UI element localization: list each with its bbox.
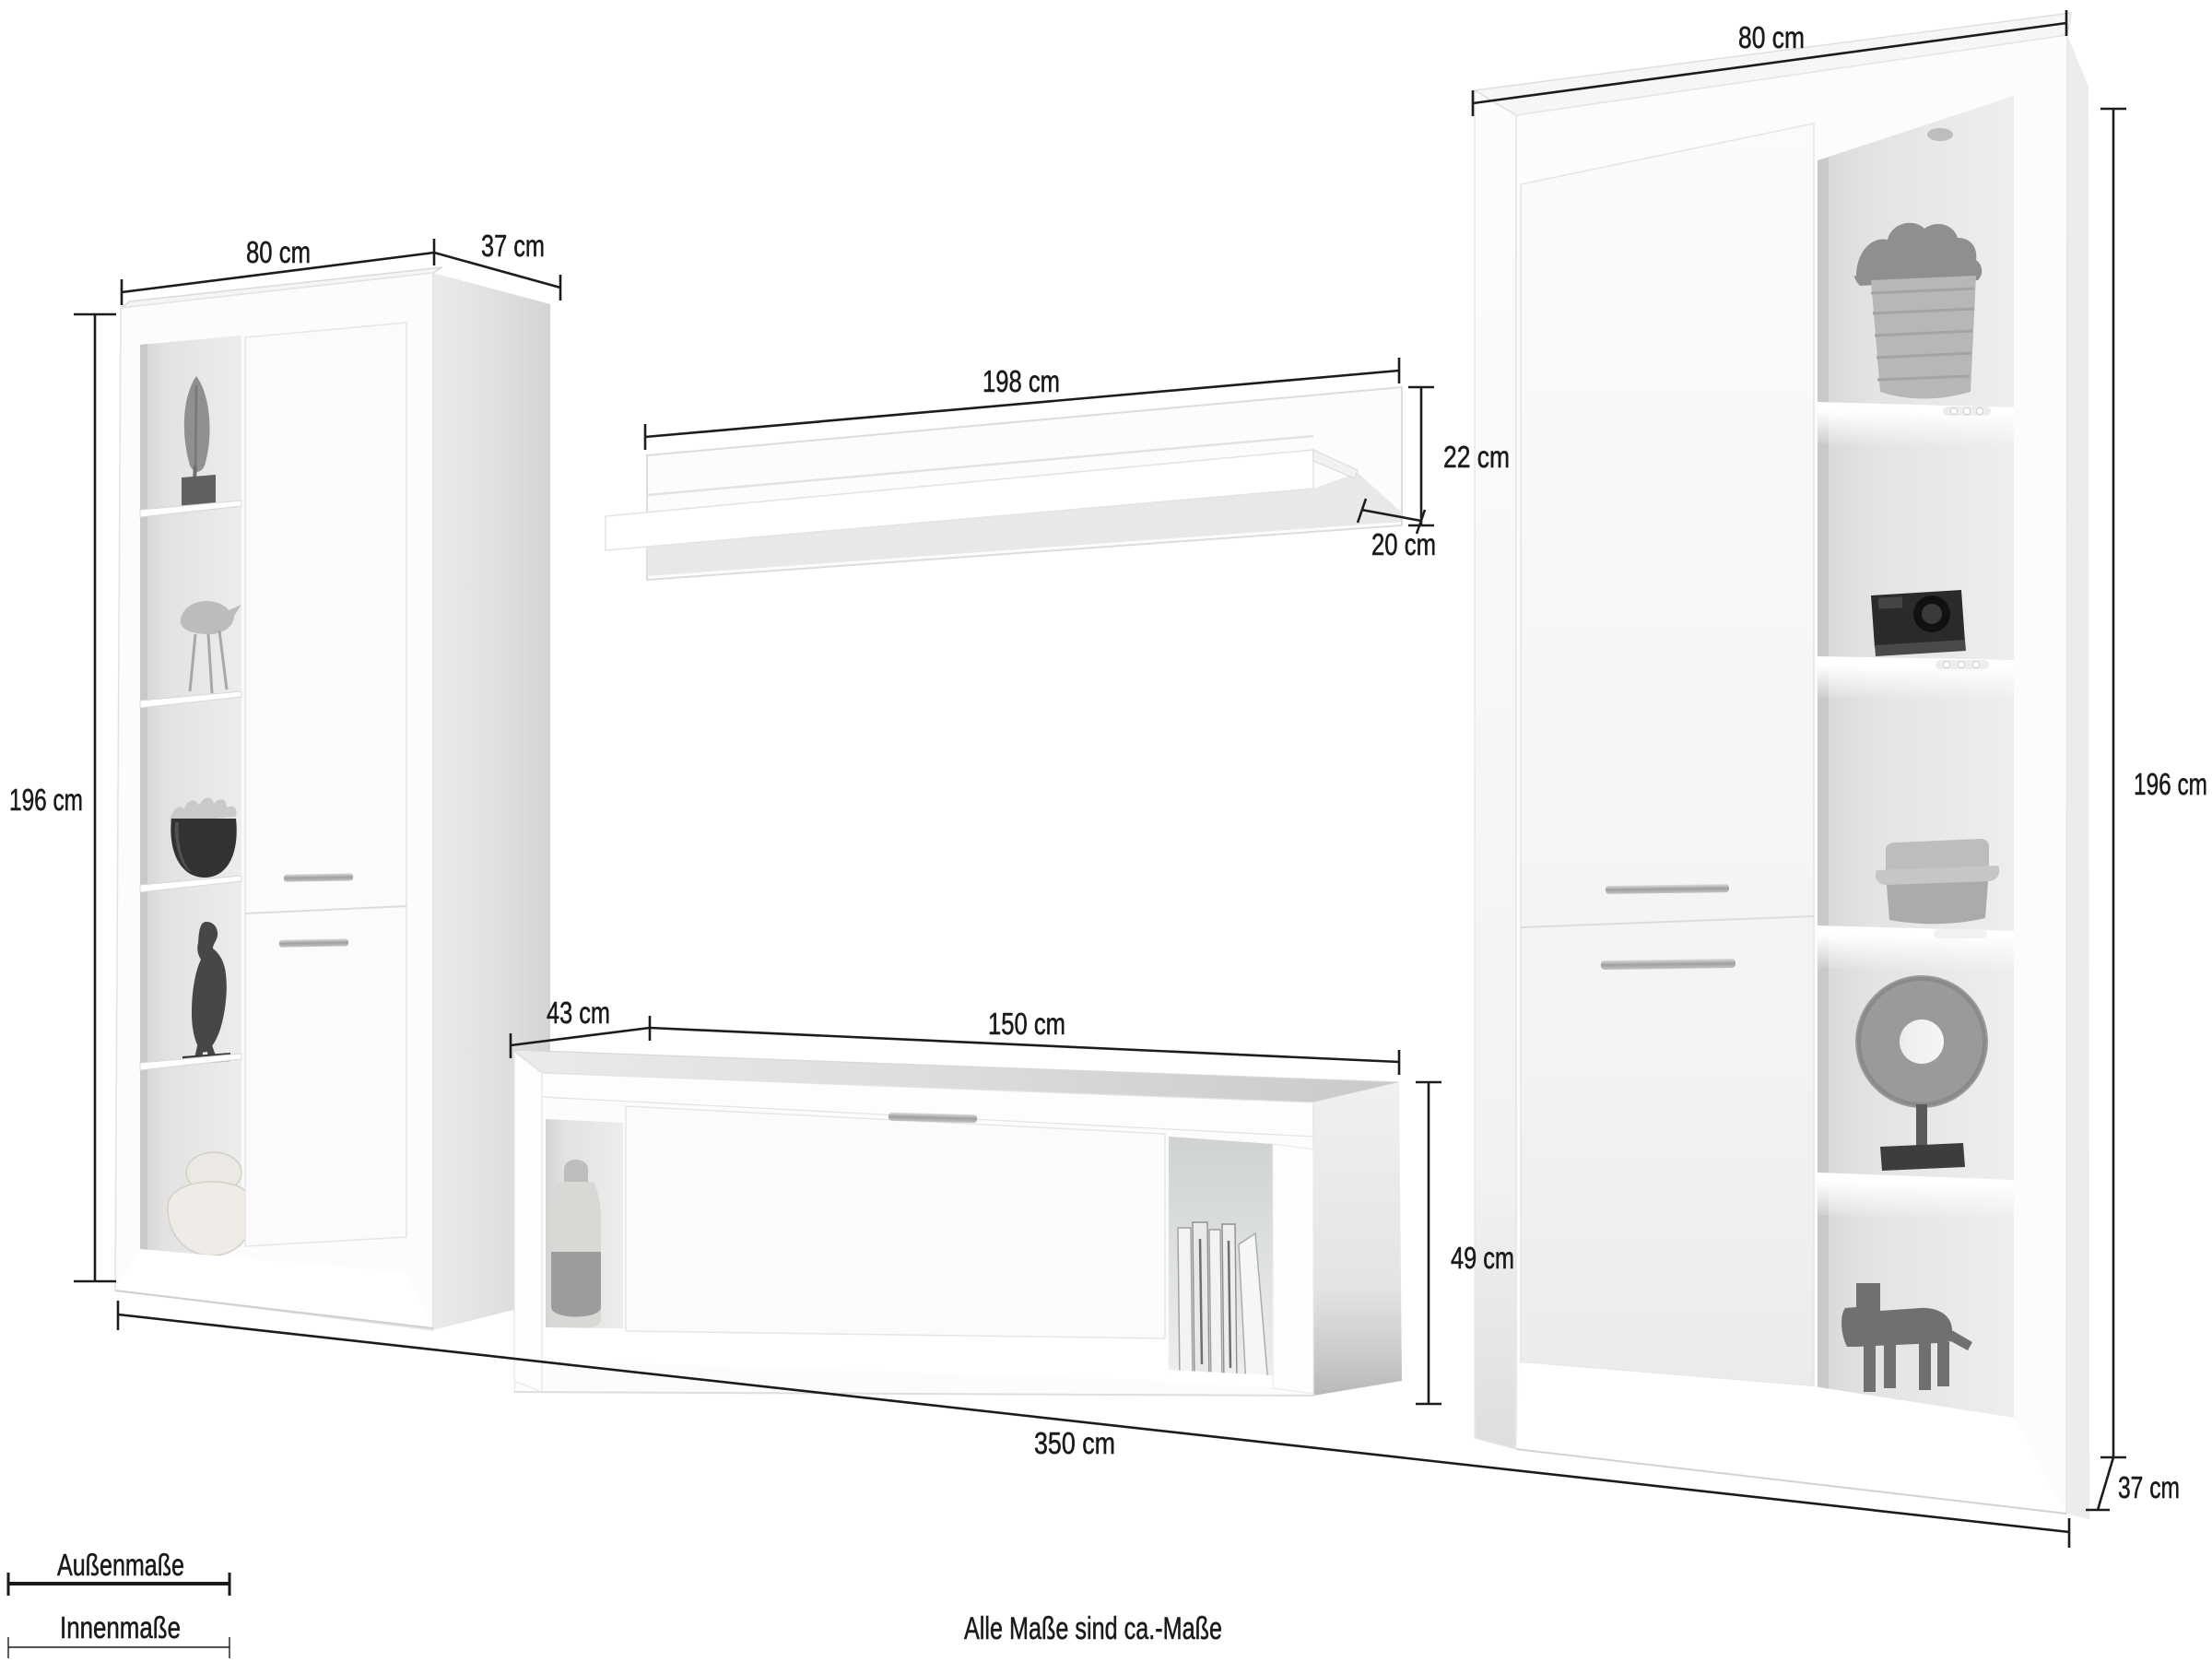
svg-text:43 cm: 43 cm [547, 996, 610, 1030]
svg-text:Alle Maße sind ca.-Maße: Alle Maße sind ca.-Maße [964, 1611, 1222, 1646]
svg-text:37 cm: 37 cm [481, 229, 545, 263]
svg-text:196 cm: 196 cm [9, 783, 83, 817]
svg-text:350 cm: 350 cm [1034, 1426, 1115, 1460]
svg-text:196 cm: 196 cm [2134, 767, 2207, 801]
svg-text:Außenmaße: Außenmaße [57, 1548, 184, 1582]
svg-text:22 cm: 22 cm [1443, 440, 1510, 474]
svg-text:20 cm: 20 cm [1371, 527, 1436, 561]
svg-text:80 cm: 80 cm [1738, 20, 1805, 54]
svg-text:Innenmaße: Innenmaße [60, 1610, 181, 1644]
svg-text:150 cm: 150 cm [988, 1007, 1065, 1041]
svg-text:198 cm: 198 cm [982, 364, 1060, 398]
svg-text:80 cm: 80 cm [246, 235, 311, 269]
svg-text:37 cm: 37 cm [2118, 1470, 2180, 1504]
svg-text:49 cm: 49 cm [1451, 1241, 1514, 1275]
